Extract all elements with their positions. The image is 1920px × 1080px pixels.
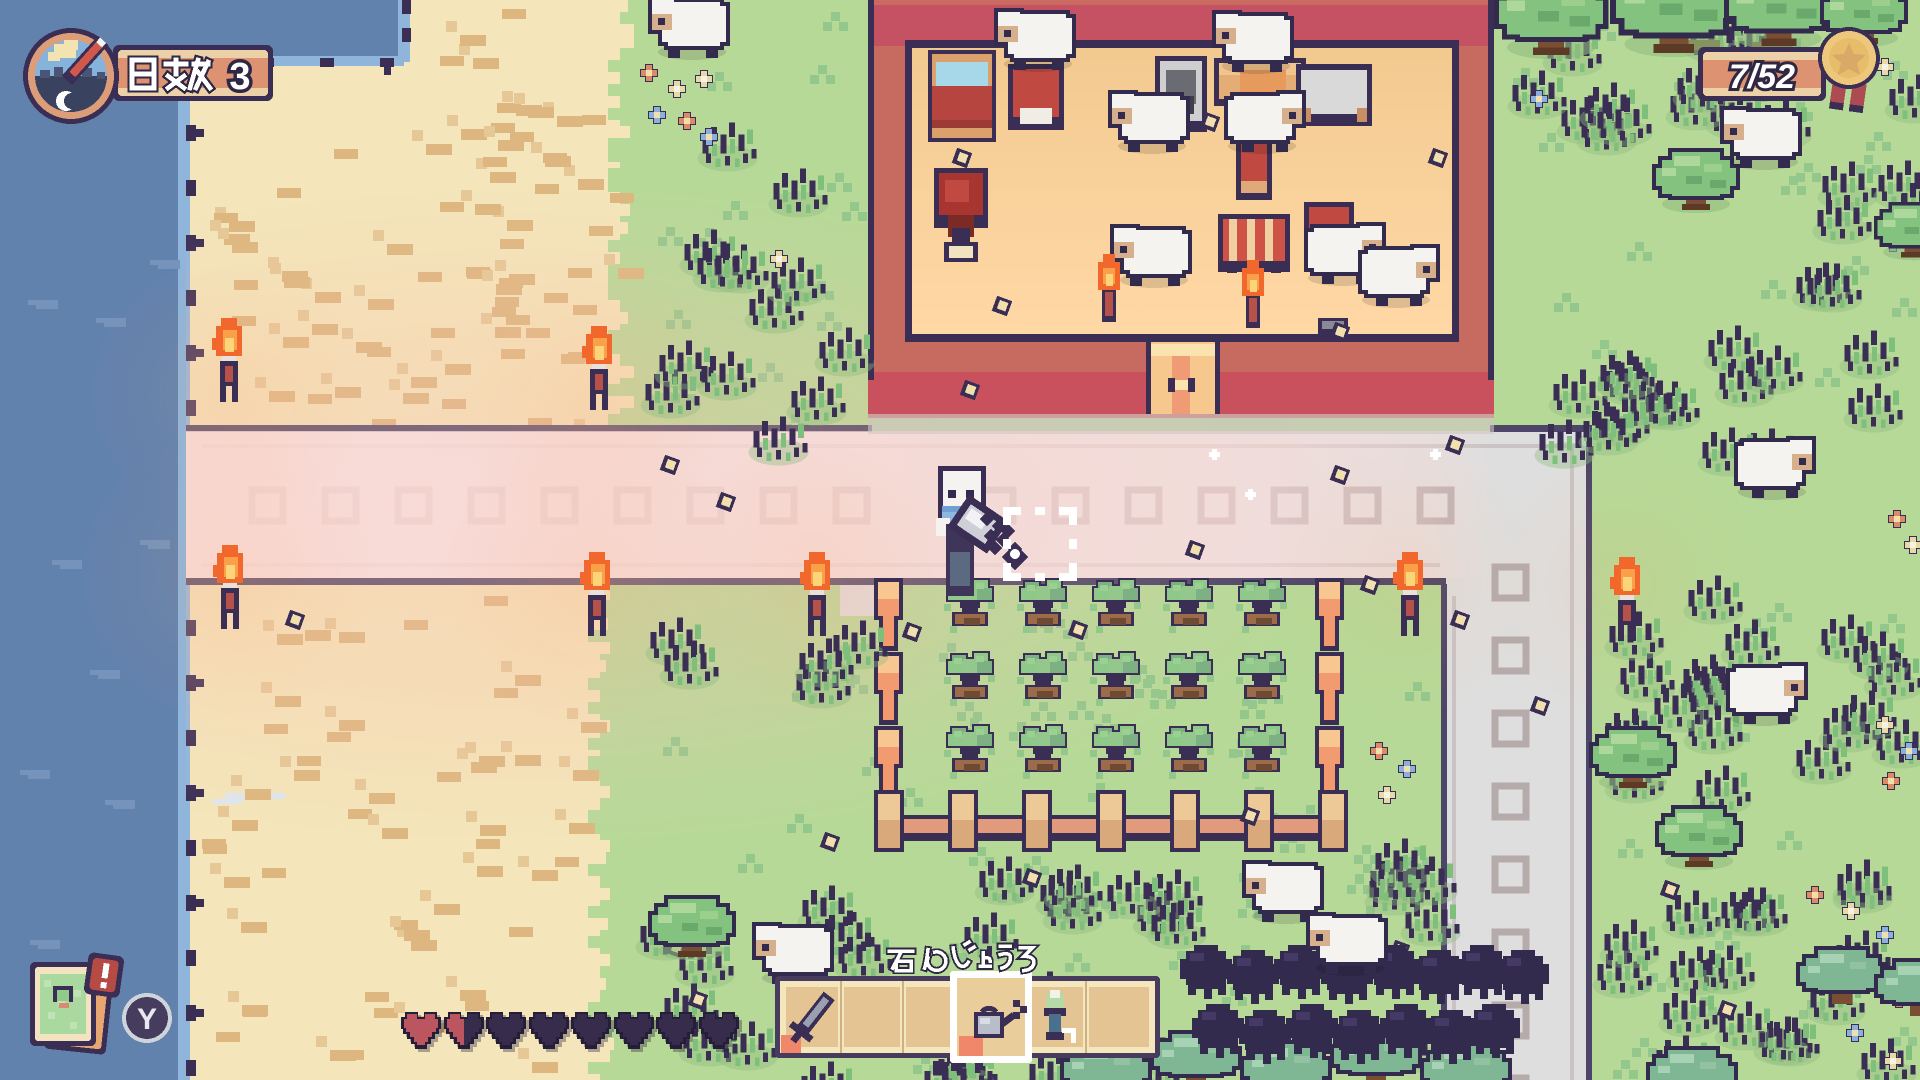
svg-text:7/52: 7/52 [1729, 58, 1795, 96]
svg-text:Y: Y [137, 1003, 157, 1036]
svg-text:3: 3 [229, 56, 250, 98]
